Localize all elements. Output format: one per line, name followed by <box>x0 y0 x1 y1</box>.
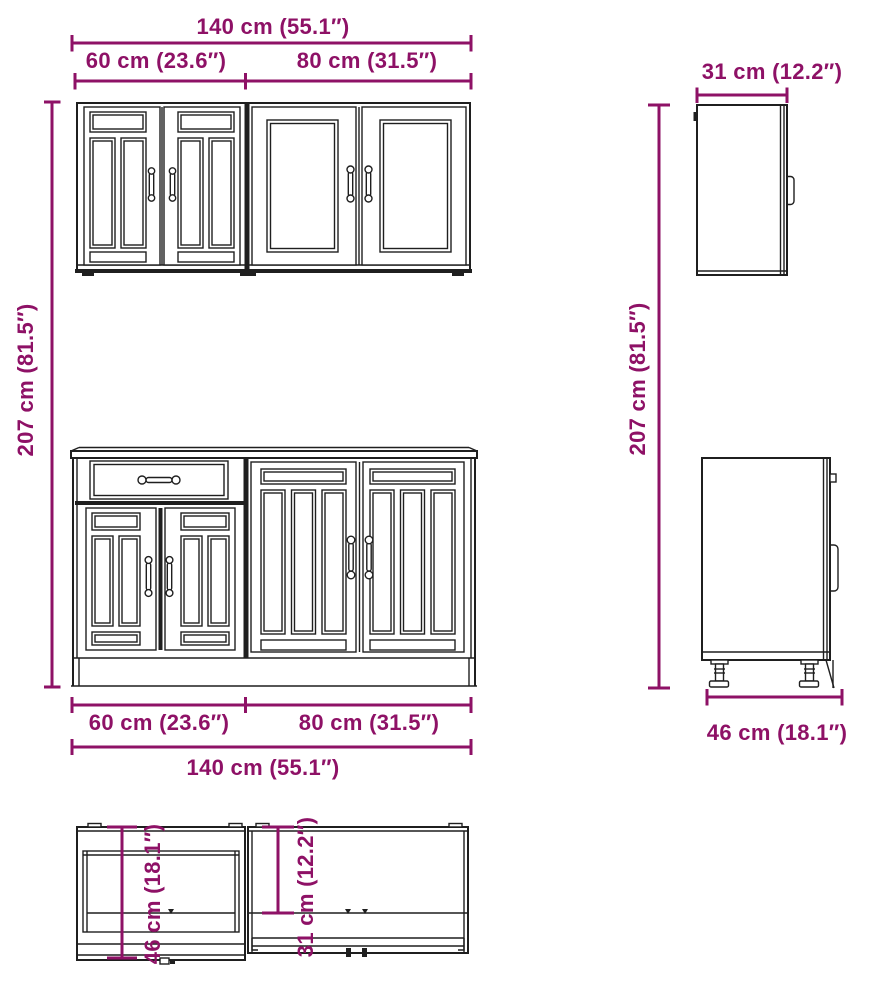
handle-icon <box>787 177 794 205</box>
dim-wall-depth <box>697 88 787 104</box>
label-topview-base-depth: 46 cm (18.1″) <box>140 824 166 964</box>
dim-base-depth <box>707 689 842 706</box>
wall-mount-bracket <box>694 112 698 121</box>
adjustable-foot <box>800 660 819 687</box>
label-base-depth: 46 cm (18.1″) <box>707 720 847 746</box>
handle-icon <box>830 545 838 591</box>
adjustable-foot <box>710 660 729 687</box>
hinge-detail <box>830 474 836 482</box>
label-left-width-bottom: 60 cm (23.6″) <box>89 710 229 736</box>
drawer-handle-icon <box>138 476 180 484</box>
dim-height-left <box>44 102 61 687</box>
label-total-width-bottom: 140 cm (55.1″) <box>187 755 340 781</box>
base-door <box>165 508 235 650</box>
dim-split-width-top <box>75 73 471 90</box>
label-left-width-top: 60 cm (23.6″) <box>86 48 226 74</box>
front-view-base-cabinets <box>71 448 477 687</box>
front-view-wall-cabinets <box>75 103 472 276</box>
top-view-wall-cabinet <box>248 824 468 958</box>
label-wall-depth: 31 cm (12.2″) <box>702 59 842 85</box>
label-topview-wall-depth: 31 cm (12.2″) <box>293 817 319 957</box>
base-door <box>86 508 156 650</box>
label-right-width-bottom: 80 cm (31.5″) <box>299 710 439 736</box>
label-total-width-top: 140 cm (55.1″) <box>197 14 350 40</box>
side-view-base-cabinet <box>702 458 838 688</box>
side-view-wall-cabinet <box>694 105 795 275</box>
countertop <box>71 451 477 458</box>
kitchen-cabinet-dimension-diagram: 140 cm (55.1″) 60 cm (23.6″) 80 cm (31.5… <box>0 0 870 983</box>
dim-total-width-bottom <box>72 739 471 755</box>
dim-height-right <box>648 105 670 688</box>
label-height-left: 207 cm (81.5″) <box>13 304 39 457</box>
line-art <box>0 0 870 983</box>
label-right-width-top: 80 cm (31.5″) <box>297 48 437 74</box>
label-height-right: 207 cm (81.5″) <box>625 303 651 456</box>
